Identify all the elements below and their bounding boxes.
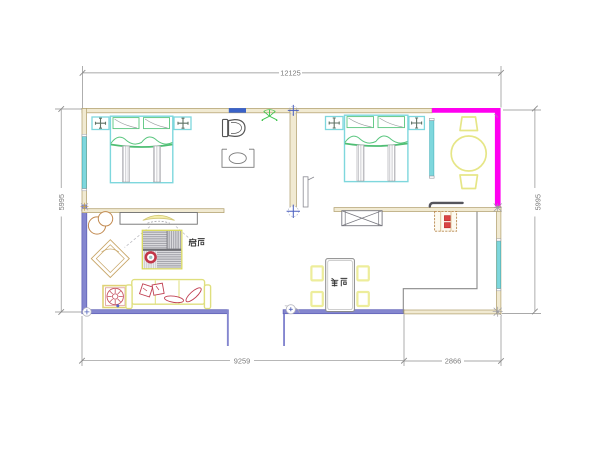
svg-text:5995: 5995 (57, 194, 66, 210)
svg-text:2866: 2866 (445, 357, 461, 366)
svg-text:12125: 12125 (280, 69, 301, 78)
svg-text:9259: 9259 (234, 356, 250, 365)
svg-text:5995: 5995 (533, 194, 542, 210)
